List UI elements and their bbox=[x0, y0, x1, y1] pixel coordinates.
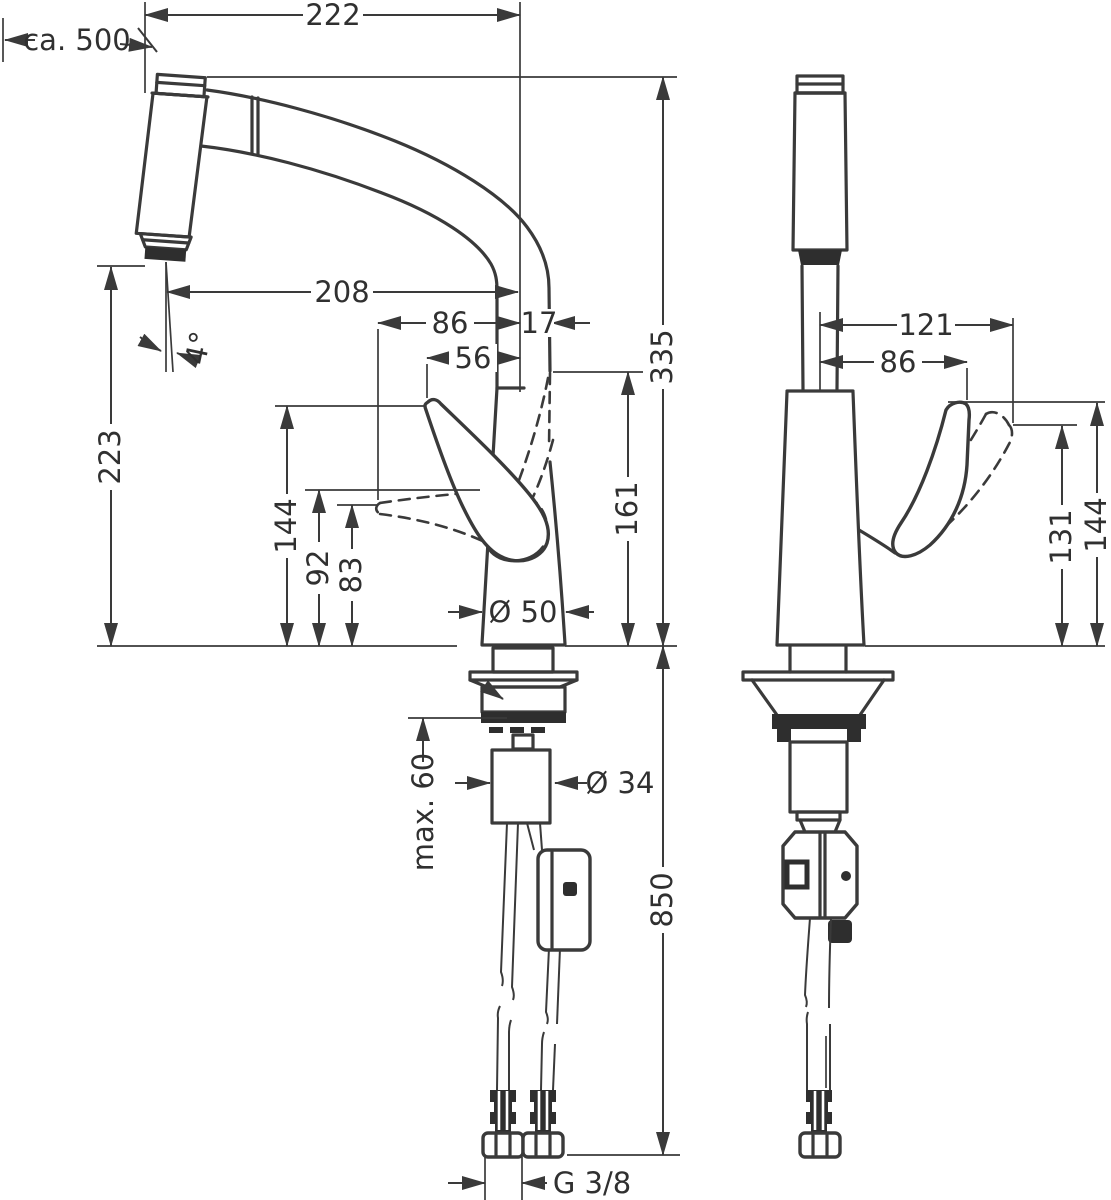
dim-86-front: 86 bbox=[820, 345, 967, 379]
front-view bbox=[743, 76, 1012, 1157]
dim-223: 223 bbox=[93, 267, 127, 646]
svg-text:max. 60: max. 60 bbox=[406, 753, 440, 872]
svg-text:144: 144 bbox=[269, 498, 303, 553]
dim-131: 131 bbox=[1044, 426, 1078, 646]
dim-dia34: Ø 34 bbox=[455, 766, 654, 800]
spray-head-front bbox=[793, 76, 847, 265]
dim-208: 208 bbox=[167, 275, 518, 309]
base-gasket-front bbox=[772, 714, 866, 729]
handle-lever bbox=[425, 400, 548, 561]
svg-text:92: 92 bbox=[301, 550, 335, 587]
dim-161: 161 bbox=[610, 372, 644, 646]
dim-144-side: 144 bbox=[269, 406, 303, 646]
spray-head bbox=[135, 74, 210, 263]
svg-text:ca. 500: ca. 500 bbox=[23, 23, 131, 57]
dim-144-front: 144 bbox=[1079, 403, 1111, 646]
svg-text:161: 161 bbox=[610, 481, 644, 536]
svg-text:4°: 4° bbox=[178, 328, 218, 367]
dim-17: 17 bbox=[521, 306, 590, 340]
hose-weight bbox=[538, 850, 590, 950]
svg-text:850: 850 bbox=[645, 872, 679, 927]
body-front bbox=[777, 392, 864, 645]
dim-222: 222 bbox=[145, 0, 520, 32]
svg-text:144: 144 bbox=[1079, 497, 1111, 552]
svg-text:56: 56 bbox=[455, 341, 492, 375]
threaded-shank bbox=[492, 750, 550, 823]
svg-text:121: 121 bbox=[898, 308, 953, 342]
svg-text:222: 222 bbox=[305, 0, 360, 32]
svg-text:86: 86 bbox=[880, 345, 917, 379]
svg-text:Ø 34: Ø 34 bbox=[586, 766, 655, 800]
dim-92: 92 bbox=[301, 490, 335, 646]
svg-text:G 3/8: G 3/8 bbox=[553, 1166, 631, 1200]
aerator-front bbox=[798, 250, 842, 265]
supply-hose-front bbox=[805, 918, 831, 1090]
technical-drawing: 222 ca. 500 208 86 17 56 bbox=[0, 0, 1111, 1200]
dim-4deg: 4° bbox=[140, 328, 218, 367]
escutcheon-flange bbox=[470, 672, 577, 680]
pullout-slash-mark bbox=[138, 28, 157, 52]
svg-text:83: 83 bbox=[334, 557, 368, 594]
faucet-dimension-diagram: 222 ca. 500 208 86 17 56 bbox=[0, 0, 1111, 1200]
dim-max60: max. 60 bbox=[406, 718, 440, 871]
dim-335: 335 bbox=[645, 77, 679, 646]
pipe-edge-hidden bbox=[549, 373, 550, 448]
svg-text:86: 86 bbox=[432, 306, 469, 340]
svg-text:223: 223 bbox=[93, 429, 127, 484]
svg-text:Ø 50: Ø 50 bbox=[489, 595, 558, 629]
mounting-clip bbox=[513, 735, 533, 749]
dim-850: 850 bbox=[645, 646, 679, 1155]
dim-83: 83 bbox=[334, 505, 368, 646]
mounting-shank-front bbox=[743, 646, 893, 943]
svg-text:131: 131 bbox=[1044, 509, 1078, 564]
dim-dia50: Ø 50 bbox=[448, 595, 594, 629]
mounting-shank bbox=[470, 648, 577, 823]
spray-tilt-line bbox=[166, 262, 173, 372]
dim-56: 56 bbox=[427, 341, 520, 375]
dim-g38: G 3/8 bbox=[448, 1166, 631, 1200]
dim-121: 121 bbox=[820, 308, 1013, 342]
dim-86-side: 86 bbox=[378, 306, 520, 340]
dim-ca500: ca. 500 bbox=[5, 23, 152, 57]
svg-text:208: 208 bbox=[314, 275, 369, 309]
svg-text:17: 17 bbox=[521, 306, 558, 340]
svg-text:335: 335 bbox=[645, 329, 679, 384]
escutcheon-flange-front bbox=[743, 672, 893, 680]
handle-lever-front bbox=[859, 402, 969, 556]
